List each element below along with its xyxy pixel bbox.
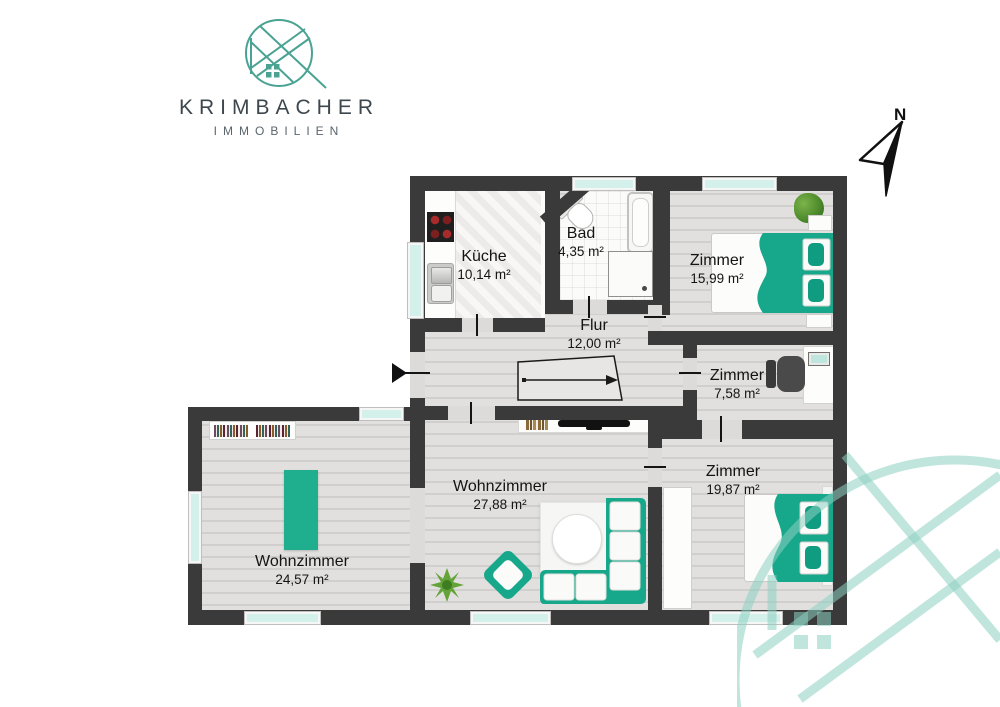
window-kitchen — [408, 243, 423, 318]
window-living27-bottom — [471, 612, 550, 624]
hall-wardrobe-symbol — [514, 352, 626, 404]
room-name: Zimmer — [657, 251, 777, 270]
room-name: Zimmer — [677, 366, 797, 385]
room-name: Küche — [424, 247, 544, 266]
room-area: 4,35 m² — [531, 243, 631, 260]
room-area: 10,14 m² — [424, 266, 544, 283]
brand-name: KRIMBACHER — [179, 96, 379, 120]
wall-right — [833, 176, 847, 625]
armchair-seat — [491, 558, 525, 592]
room-label-zimmer7: Zimmer 7,58 m² — [677, 366, 797, 402]
window-bath — [573, 178, 635, 190]
room-label-bad: Bad 4,35 m² — [531, 224, 631, 260]
door-tick — [588, 296, 590, 318]
door-tick — [476, 314, 478, 336]
dining-table — [284, 470, 318, 550]
room-name: Wohnzimmer — [222, 552, 382, 571]
floorplan-page: KRIMBACHER IMMOBILIEN N — [0, 0, 1000, 707]
north-label: N — [894, 105, 906, 124]
room-area: 24,57 m² — [222, 571, 382, 588]
books — [256, 425, 290, 437]
shower-drain — [642, 286, 647, 291]
window-living-left — [189, 492, 201, 563]
nightstand — [808, 215, 832, 231]
room-name: Flur — [534, 316, 654, 335]
bathtub-inner — [632, 198, 649, 247]
room-label-flur: Flur 12,00 m² — [534, 316, 654, 352]
window-bedroom15 — [703, 178, 776, 190]
nightstand — [806, 314, 832, 328]
room-label-zimmer19: Zimmer 19,87 m² — [673, 462, 793, 498]
door-office-bedroom19 — [702, 420, 742, 439]
door-tick — [720, 416, 722, 442]
brand-tagline: IMMOBILIEN — [179, 124, 379, 138]
room-label-kueche: Küche 10,14 m² — [424, 247, 544, 283]
bathtub — [627, 192, 654, 253]
room-label-zimmer15: Zimmer 15,99 m² — [657, 251, 777, 287]
tv-stand — [586, 426, 602, 430]
window-living-top — [360, 408, 403, 420]
laptop — [808, 352, 830, 366]
door-bath — [573, 300, 607, 314]
room-area: 27,88 m² — [420, 496, 580, 513]
door-tick — [644, 466, 666, 468]
window-living-bottom — [245, 612, 320, 624]
plant — [429, 567, 465, 603]
door-tick — [404, 372, 430, 374]
entrance-arrow-icon — [392, 363, 407, 383]
room-name: Wohnzimmer — [420, 477, 580, 496]
room-area: 7,58 m² — [677, 385, 797, 402]
sink-basin — [431, 285, 452, 302]
wall-office-bottom — [648, 420, 847, 439]
brand-text: KRIMBACHER IMMOBILIEN — [179, 96, 379, 138]
wall-bedroom15-bottom — [662, 331, 847, 345]
room-area: 15,99 m² — [657, 270, 777, 287]
door-entrance — [410, 352, 425, 398]
window-bedroom19-bottom — [710, 612, 782, 624]
room-area: 19,87 m² — [673, 481, 793, 498]
room-name: Zimmer — [673, 462, 793, 481]
double-bed — [744, 494, 834, 582]
room-label-wohnzimmer27: Wohnzimmer 27,88 m² — [420, 477, 580, 513]
room-area: 12,00 m² — [534, 335, 654, 352]
door-tick — [470, 402, 472, 424]
north-compass-icon: N — [852, 100, 922, 200]
stove — [427, 212, 454, 242]
books — [214, 425, 248, 437]
room-name: Bad — [531, 224, 631, 243]
laptop-screen — [811, 355, 827, 363]
wall-bath-bedroom — [653, 176, 670, 315]
wardrobe — [663, 487, 692, 609]
bookshelf — [209, 421, 296, 440]
brand-logo-icon — [230, 12, 340, 97]
room-label-wohnzimmer24: Wohnzimmer 24,57 m² — [222, 552, 382, 588]
